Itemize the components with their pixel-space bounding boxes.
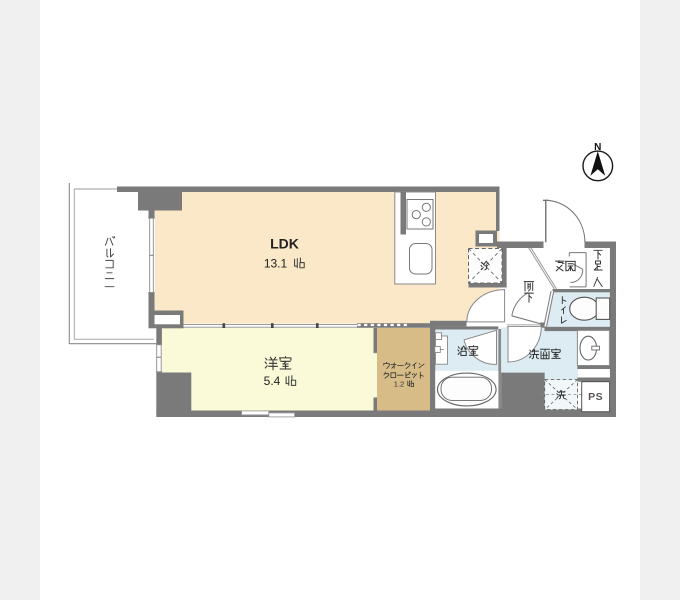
svg-text:PS: PS — [588, 391, 603, 403]
svg-text:13.1: 13.1 — [264, 257, 288, 271]
svg-text:1.2: 1.2 — [394, 379, 404, 388]
svg-text:5.4: 5.4 — [264, 374, 281, 388]
svg-text:LDK: LDK — [270, 236, 299, 252]
svg-text:N: N — [594, 142, 601, 153]
